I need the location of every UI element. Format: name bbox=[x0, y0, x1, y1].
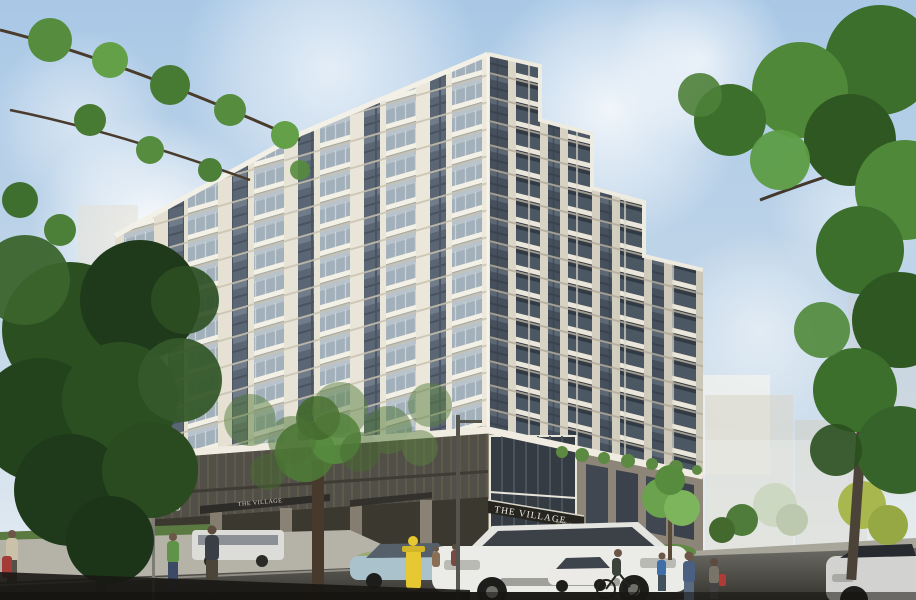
architectural-rendering: THE VILLAGE THE VILLAGE on Western bbox=[0, 0, 916, 600]
bottom-vignette bbox=[0, 592, 916, 600]
red-bag bbox=[719, 574, 726, 586]
scene-svg: THE VILLAGE THE VILLAGE on Western bbox=[0, 0, 916, 600]
podium-window bbox=[586, 464, 608, 528]
